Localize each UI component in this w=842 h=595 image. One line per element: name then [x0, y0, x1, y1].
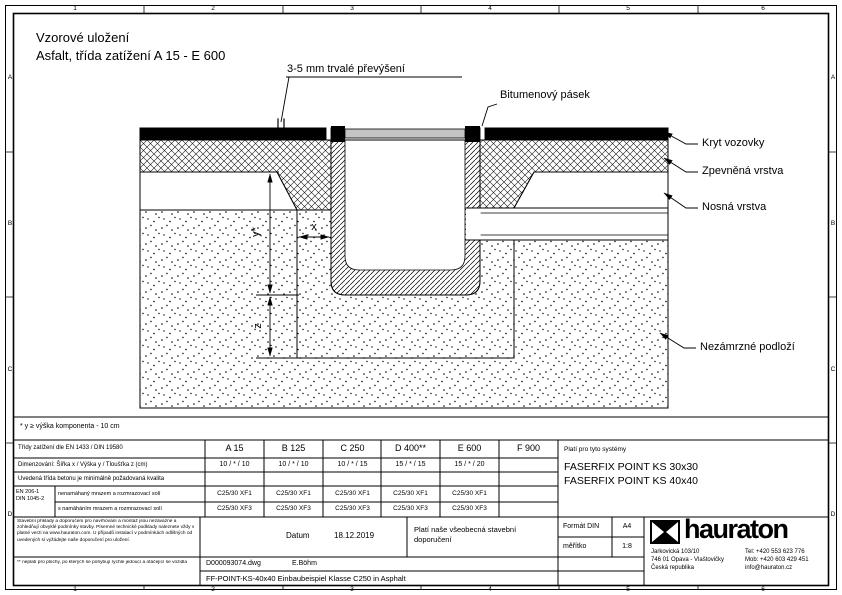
format-value: A4	[612, 523, 642, 530]
dims-b125: 10 / * / 10	[264, 461, 323, 468]
asphalt-left	[140, 128, 326, 140]
address-line-2: 746 01 Opava - Vlaštovičky	[651, 556, 724, 564]
xf1-b125: C25/30 XF1	[264, 490, 323, 497]
dims-c250: 10 / * / 15	[323, 461, 382, 468]
contact-mobile: Mob: +420 603 429 451	[745, 556, 809, 564]
class-c250: C 250	[323, 443, 382, 453]
xf1-a15: C25/30 XF1	[205, 490, 264, 497]
ruler-col-4: 4	[482, 5, 498, 12]
surface-leader	[664, 132, 698, 144]
base-leader	[664, 158, 698, 172]
ruler-row-a2: A	[829, 74, 837, 81]
ruler-row-d2: D	[829, 511, 837, 518]
ruler-col-6: 6	[755, 5, 771, 12]
norm-en: EN 206-1	[16, 489, 54, 496]
contact-email: info@hauraton.cz	[745, 564, 809, 572]
concrete-norms: EN 206-1 DIN 1045-2	[16, 489, 54, 503]
dimension-row-label: Dimenzování: Šířka x / Výška y / Tloušťk…	[18, 462, 148, 468]
ruler-col-1: 1	[67, 5, 83, 12]
date-label: Datum	[286, 531, 310, 540]
ruler-row-b: B	[6, 220, 14, 227]
class-d400: D 400**	[381, 443, 440, 453]
base-layer-label: Zpevněná vrstva	[702, 165, 783, 177]
xf3-c250: C25/30 XF3	[323, 505, 382, 512]
ruler-col-6b: 6	[755, 586, 771, 593]
dims-e600: 15 / * / 20	[440, 461, 499, 468]
ruler-row-b2: B	[829, 220, 837, 227]
bearing-layer-label: Nosná vrstva	[702, 201, 766, 213]
xf1-row-label: nenamáhaný mrazem a rozmrazovací solí	[58, 491, 160, 497]
ruler-row-d: D	[6, 511, 14, 518]
address-line-1: Jarkovická 103/10	[651, 548, 724, 556]
system-item-1: FASERFIX POINT KS 30x30	[564, 461, 698, 473]
contact-block: Tel: +420 553 623 776 Mob: +420 603 429 …	[745, 548, 809, 572]
edge-angle-left	[331, 126, 345, 142]
asphalt-right	[485, 128, 668, 140]
grate	[345, 129, 465, 138]
bearing-leader	[664, 193, 698, 208]
subsoil-label: Nezámrzné podloží	[700, 341, 795, 353]
address-line-3: Česká republika	[651, 564, 724, 572]
footnote-d400: ** neplatí pro plochy, po kterých se poh…	[17, 560, 195, 582]
class-b125: B 125	[264, 443, 323, 453]
xf1-e600: C25/30 XF1	[440, 490, 499, 497]
load-class-label: Třídy zatížení dle EN 1433 / DIN 19580	[18, 445, 123, 451]
outlet-pipe	[466, 208, 668, 240]
class-a15: A 15	[205, 443, 264, 453]
page-subtitle: Asfalt, třída zatížení A 15 - E 600	[36, 48, 225, 63]
edge-angle-right	[465, 126, 480, 142]
disclaimer-text: Stavební příklady a doporučení pro navrh…	[17, 519, 195, 555]
surface-layer-label: Kryt vozovky	[702, 137, 764, 149]
class-e600: E 600	[440, 443, 499, 453]
xf3-row-label: s namáháním mrazem a rozmrazovací solí	[58, 506, 162, 512]
xf1-c250: C25/30 XF1	[323, 490, 382, 497]
ruler-col-2b: 2	[205, 586, 221, 593]
ruler-col-1b: 1	[67, 586, 83, 593]
bitumen-label: Bitumenový pásek	[500, 89, 590, 101]
systems-heading: Platí pro tyto systémy	[564, 446, 626, 453]
concrete-note: Uvedená třída betonu je minimálně požado…	[18, 476, 164, 482]
document-title: FF-POINT-KS-40x40 Einbaubeispiel Klasse …	[206, 574, 406, 583]
address-block: Jarkovická 103/10 746 01 Opava - Vlaštov…	[651, 548, 724, 572]
scale-value: 1:8	[612, 543, 642, 550]
bearing-course-right	[514, 172, 668, 208]
overhang-label: 3-5 mm trvalé převýšení	[287, 63, 405, 75]
ruler-row-c2: C	[829, 366, 837, 373]
bearing-course-left	[140, 172, 297, 210]
ruler-row-a: A	[6, 74, 14, 81]
general-note: Platí naše všeobecná stavební doporučení	[414, 525, 544, 545]
format-label: Formát DIN	[563, 523, 599, 530]
xf3-e600: C25/30 XF3	[440, 505, 499, 512]
dim-z-label: z	[252, 316, 264, 336]
xf3-d400: C25/30 XF3	[381, 505, 440, 512]
system-item-2: FASERFIX POINT KS 40x40	[564, 475, 698, 487]
ruler-col-5b: 5	[620, 586, 636, 593]
ruler-col-3: 3	[344, 5, 360, 12]
dims-d400: 15 / * / 15	[381, 461, 440, 468]
drawing-sheet: 1 2 3 4 5 6 1 2 3 4 5 6 A B C D A B C D …	[0, 0, 842, 595]
overhang-leader	[281, 77, 462, 122]
page-title: Vzorové uložení	[36, 30, 129, 45]
ruler-col-5: 5	[620, 5, 636, 12]
xf3-b125: C25/30 XF3	[264, 505, 323, 512]
dim-y-label: y*	[250, 222, 262, 242]
cross-section	[140, 119, 668, 408]
scale-label: měřítko	[563, 543, 586, 550]
author: E.Böhm	[292, 560, 317, 567]
dims-a15: 10 / * / 10	[205, 461, 264, 468]
class-f900: F 900	[499, 443, 558, 453]
footnote-y: * y ≥ výška komponenta - 10 cm	[20, 423, 120, 430]
file-name: D000093074.dwg	[206, 560, 261, 567]
bitumen-leader	[482, 104, 497, 126]
hauraton-logo-icon	[650, 520, 680, 544]
xf3-a15: C25/30 XF3	[205, 505, 264, 512]
brand-logotype: hauraton	[684, 514, 788, 545]
ruler-row-c: C	[6, 366, 14, 373]
norm-din: DIN 1045-2	[16, 496, 54, 503]
ruler-col-2: 2	[205, 5, 221, 12]
ruler-col-3b: 3	[344, 586, 360, 593]
dim-x-label: x	[304, 221, 324, 233]
xf1-d400: C25/30 XF1	[381, 490, 440, 497]
date-value: 18.12.2019	[334, 531, 374, 540]
contact-phone: Tel: +420 553 623 776	[745, 548, 809, 556]
ruler-col-4b: 4	[482, 586, 498, 593]
